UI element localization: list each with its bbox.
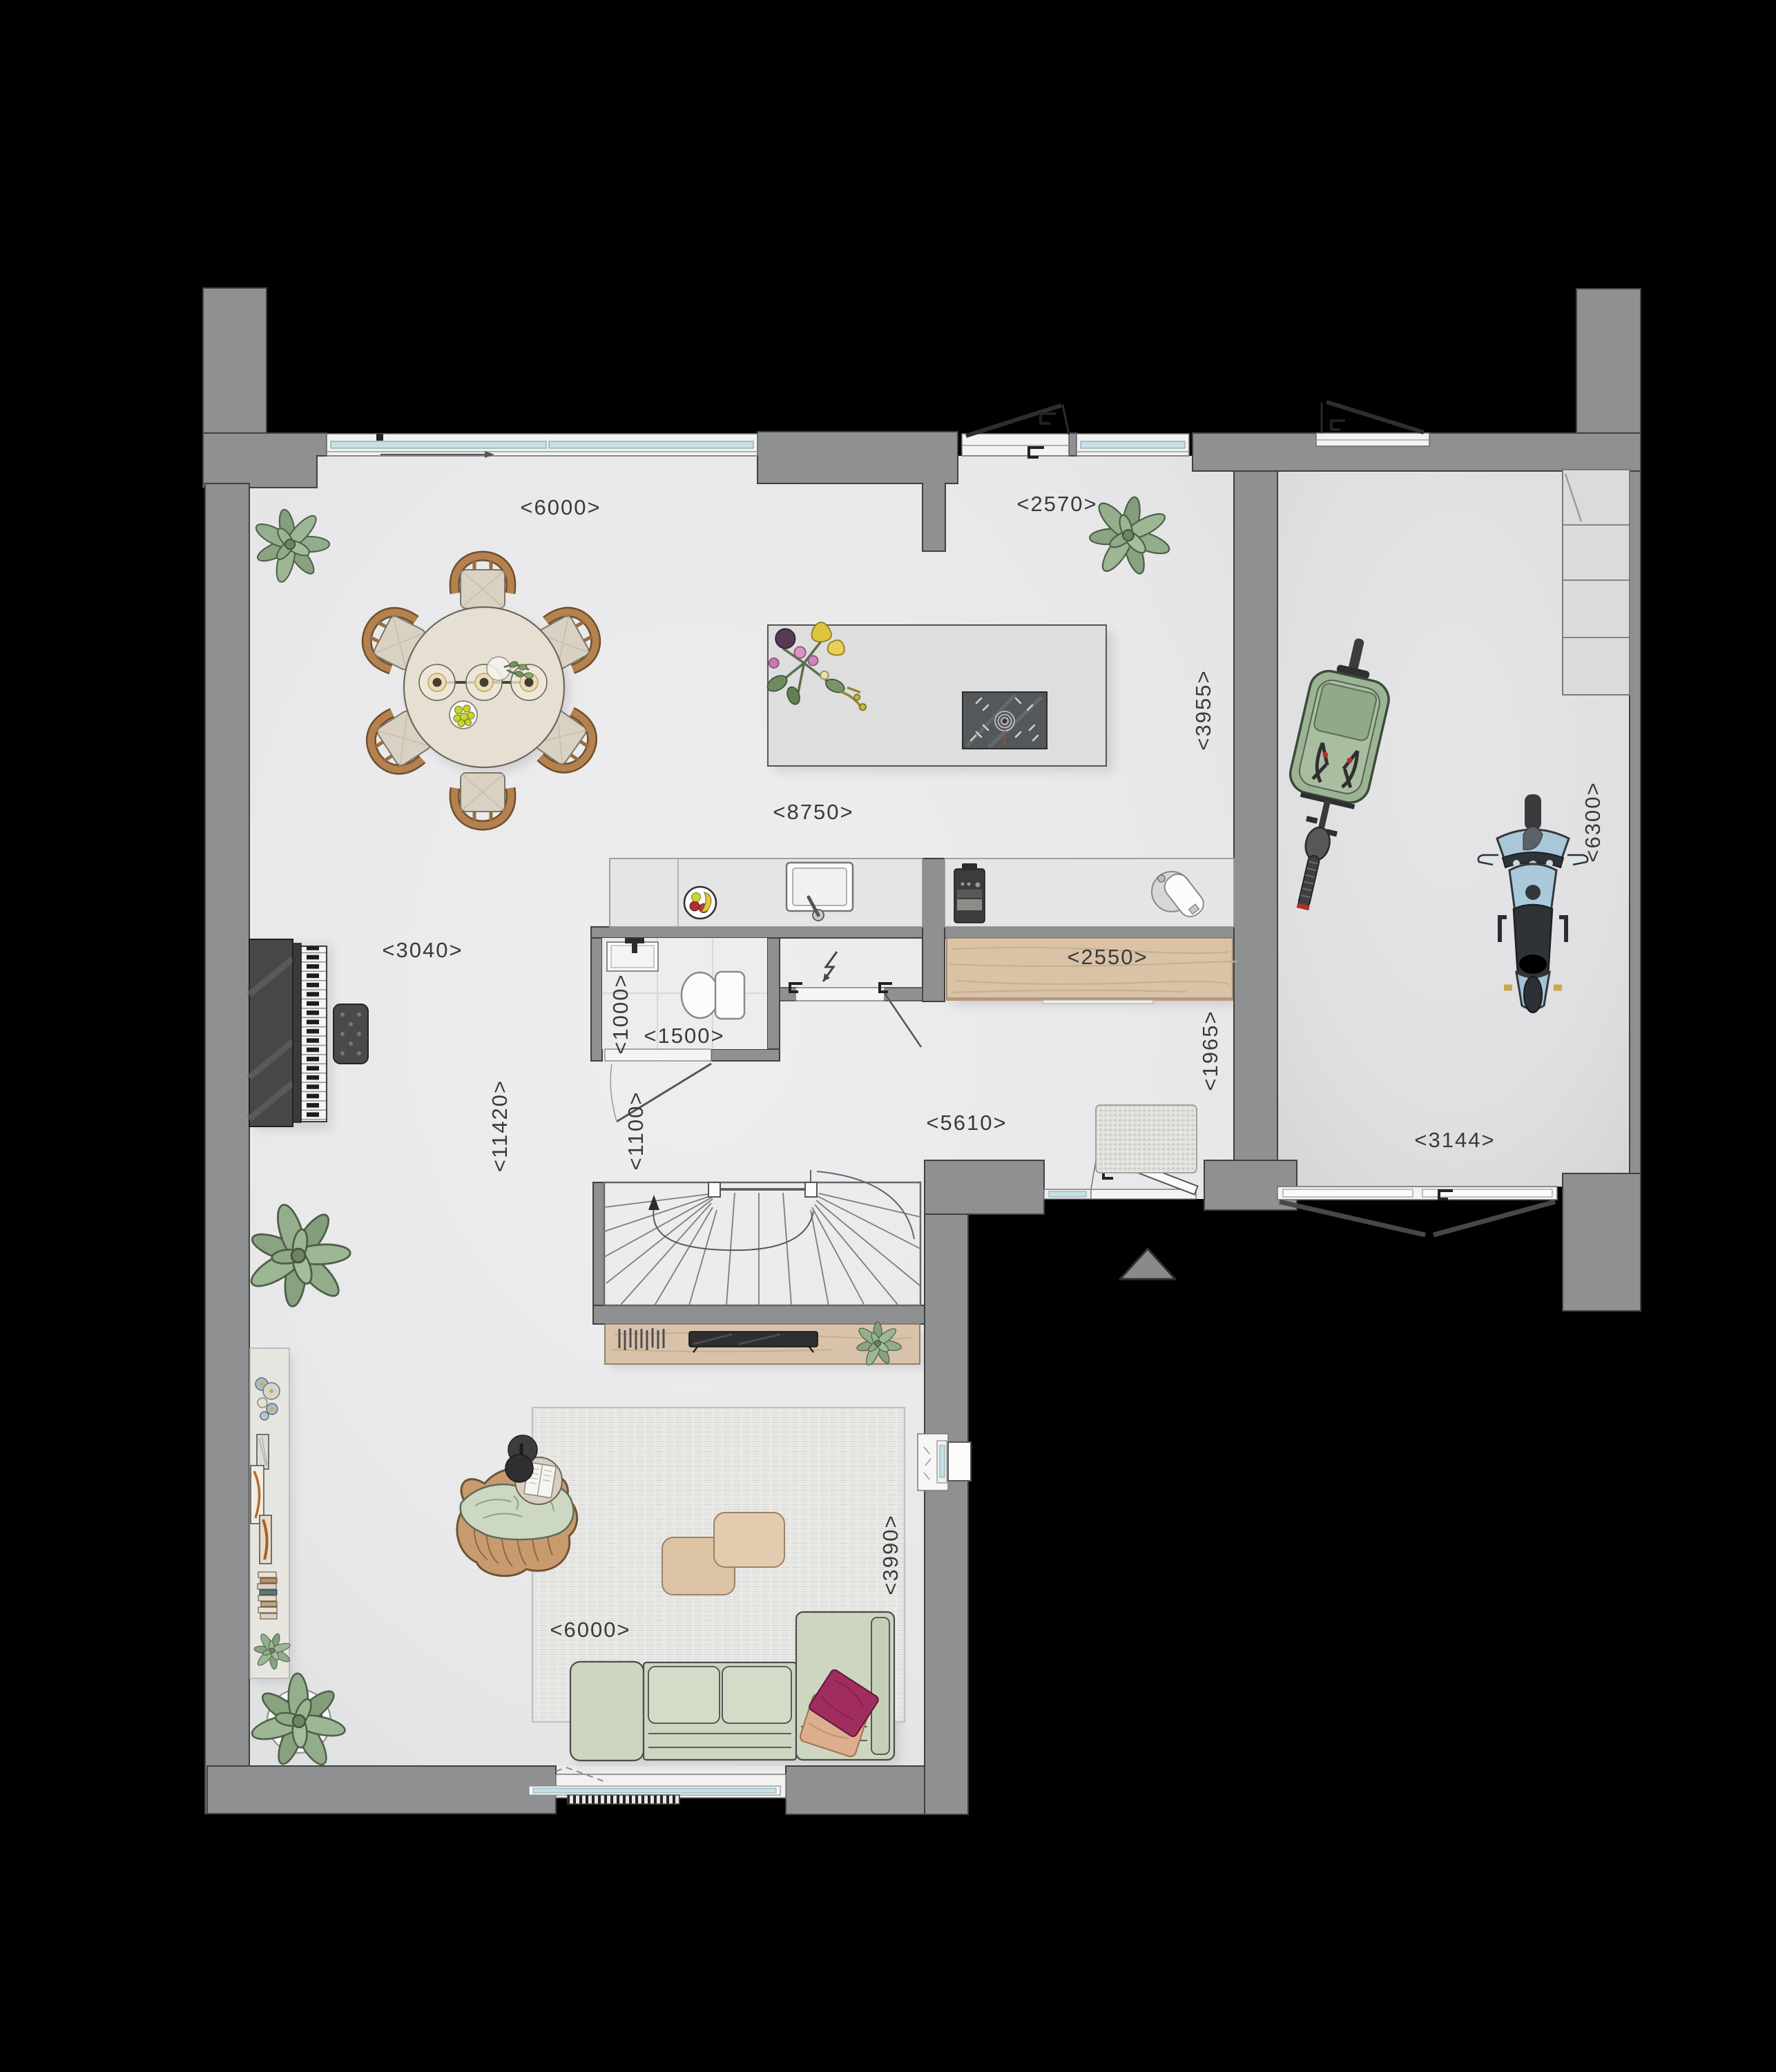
svg-text:<1100>: <1100>: [624, 1091, 648, 1171]
svg-text:<6000>: <6000>: [550, 1618, 630, 1642]
svg-text:<1000>: <1000>: [608, 973, 633, 1054]
svg-text:<6000>: <6000>: [520, 495, 601, 519]
svg-text:<3990>: <3990>: [878, 1514, 903, 1595]
svg-text:<1500>: <1500>: [644, 1024, 724, 1048]
svg-text:<3040>: <3040>: [382, 938, 463, 962]
svg-text:<3955>: <3955>: [1191, 669, 1215, 750]
svg-text:<5610>: <5610>: [926, 1111, 1007, 1135]
svg-text:<11420>: <11420>: [488, 1080, 512, 1172]
svg-text:<8750>: <8750>: [773, 800, 853, 824]
svg-text:<2570>: <2570>: [1016, 492, 1097, 516]
svg-text:<2550>: <2550>: [1067, 945, 1148, 969]
svg-text:<6300>: <6300>: [1581, 781, 1605, 862]
svg-text:<3144>: <3144>: [1414, 1128, 1495, 1152]
svg-text:<1965>: <1965>: [1198, 1010, 1222, 1091]
